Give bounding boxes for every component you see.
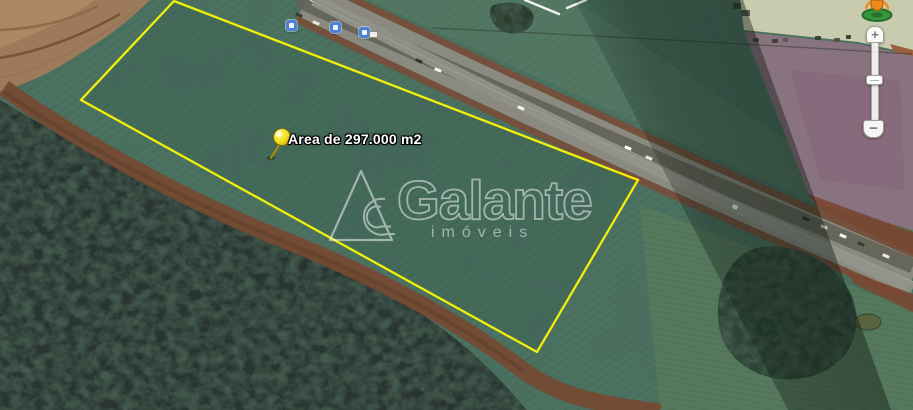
road-label[interactable] bbox=[369, 31, 378, 38]
zoom-in-button[interactable]: + bbox=[866, 26, 884, 43]
zoom-control: + − bbox=[861, 24, 887, 142]
satellite-map[interactable]: Galante imóveis Area de 297.000 m2 bbox=[0, 0, 913, 410]
satellite-imagery bbox=[0, 0, 913, 410]
road-shield-icon[interactable] bbox=[286, 20, 297, 31]
placemark-label[interactable]: Area de 297.000 m2 bbox=[288, 131, 422, 147]
road-shield-icon[interactable] bbox=[330, 22, 341, 33]
zoom-slider-handle[interactable] bbox=[866, 75, 883, 85]
pegman-icon[interactable] bbox=[858, 0, 896, 22]
zoom-out-button[interactable]: − bbox=[863, 120, 884, 138]
